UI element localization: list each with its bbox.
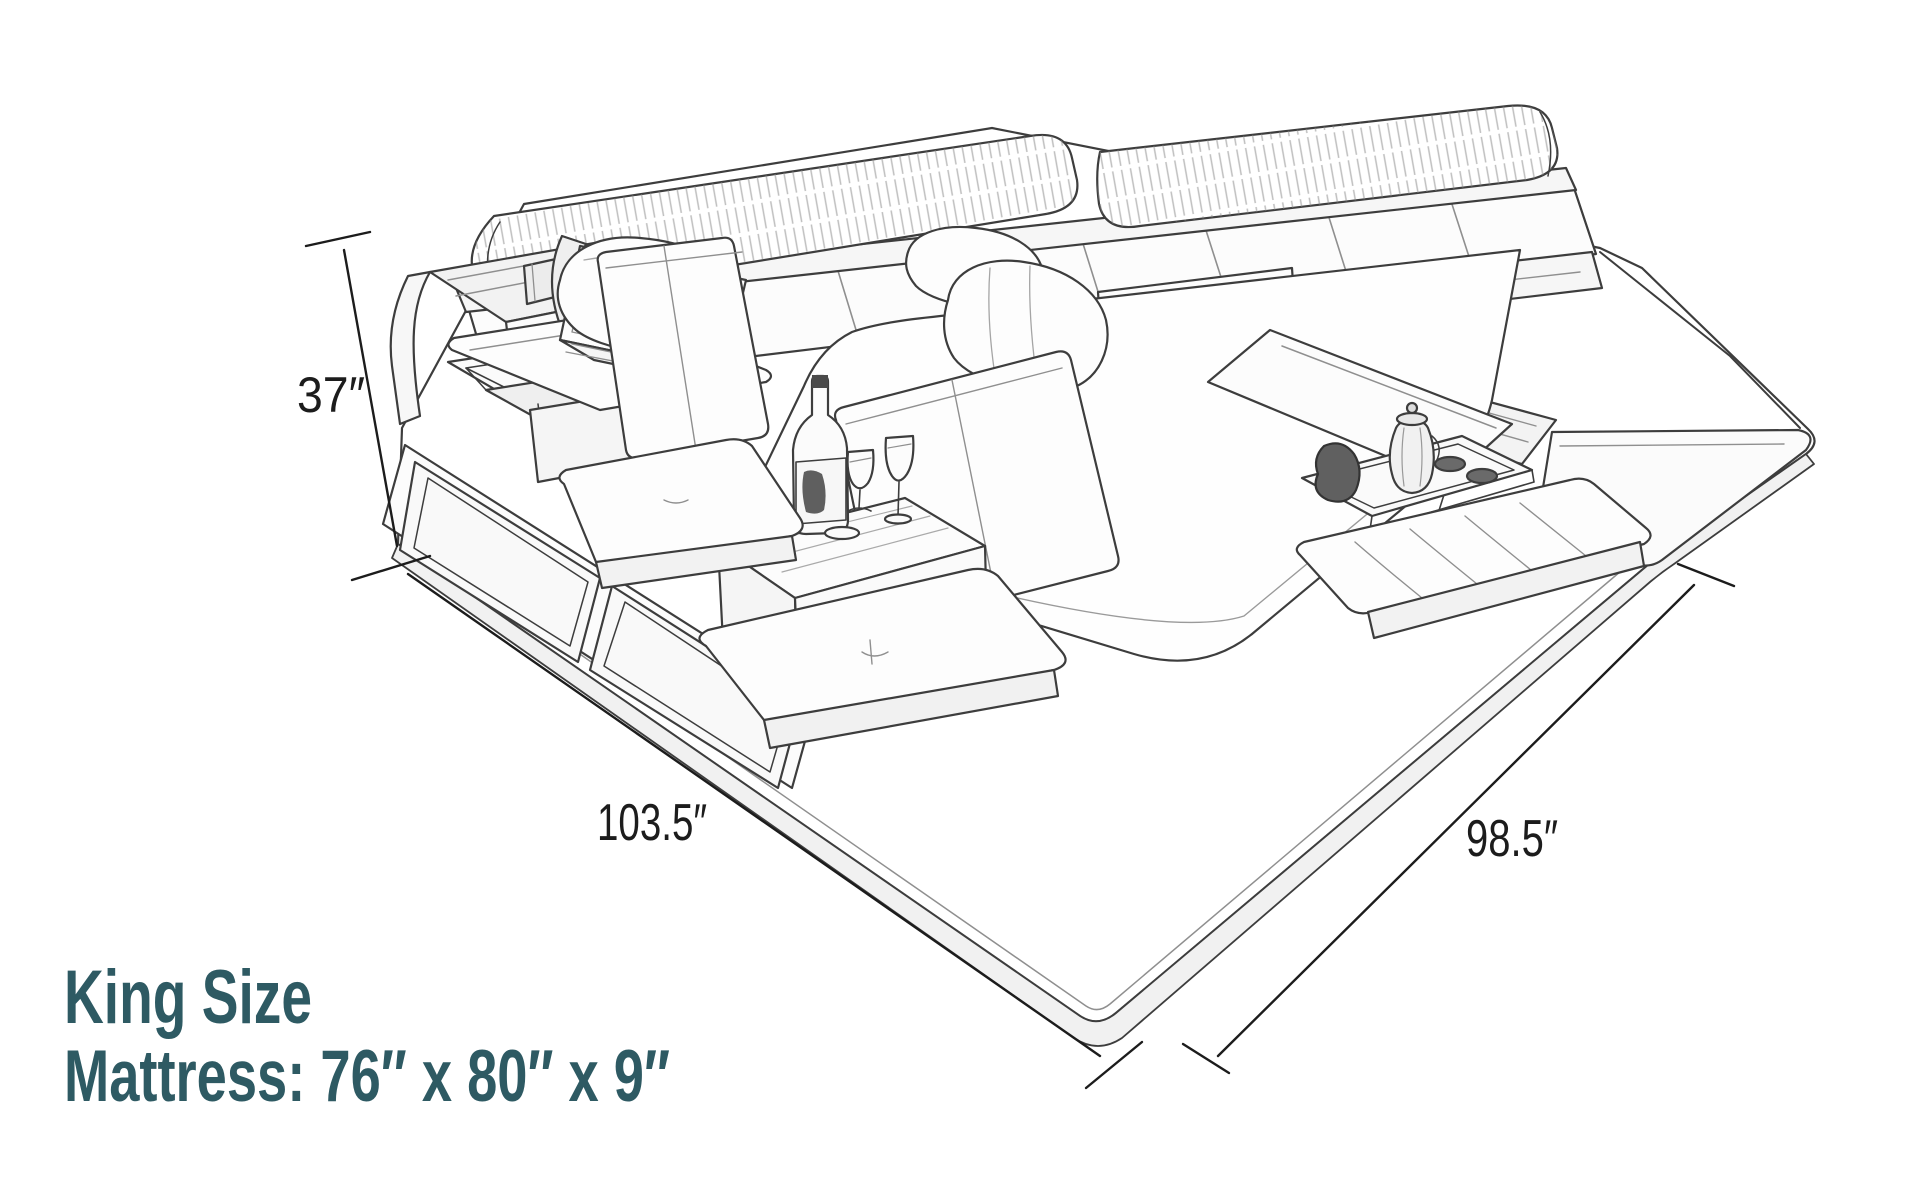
width-tick-end (1678, 564, 1734, 586)
width-tick-start (1183, 1044, 1229, 1073)
size-title: King Size (64, 955, 312, 1040)
mattress-spec: Mattress: 76″ x 80″ x 9″ (64, 1036, 670, 1117)
width-label: 98.5″ (1466, 810, 1558, 868)
bed-dimension-diagram: 37″ 103.5″ 98.5″ King Size Mattress: 76″… (0, 0, 1920, 1200)
coaster (825, 527, 859, 539)
cup (1435, 457, 1465, 471)
ornate-cup (1316, 443, 1360, 501)
cup (1467, 469, 1497, 483)
height-label: 37″ (297, 367, 365, 423)
bed-sketch (383, 105, 1815, 1046)
length-tick-end (1086, 1042, 1142, 1088)
height-tick-top (306, 232, 370, 246)
bed-line-drawing: 37″ 103.5″ 98.5″ King Size Mattress: 76″… (0, 0, 1920, 1200)
length-label: 103.5″ (597, 794, 707, 852)
caption-block: King Size Mattress: 76″ x 80″ x 9″ (64, 955, 670, 1117)
